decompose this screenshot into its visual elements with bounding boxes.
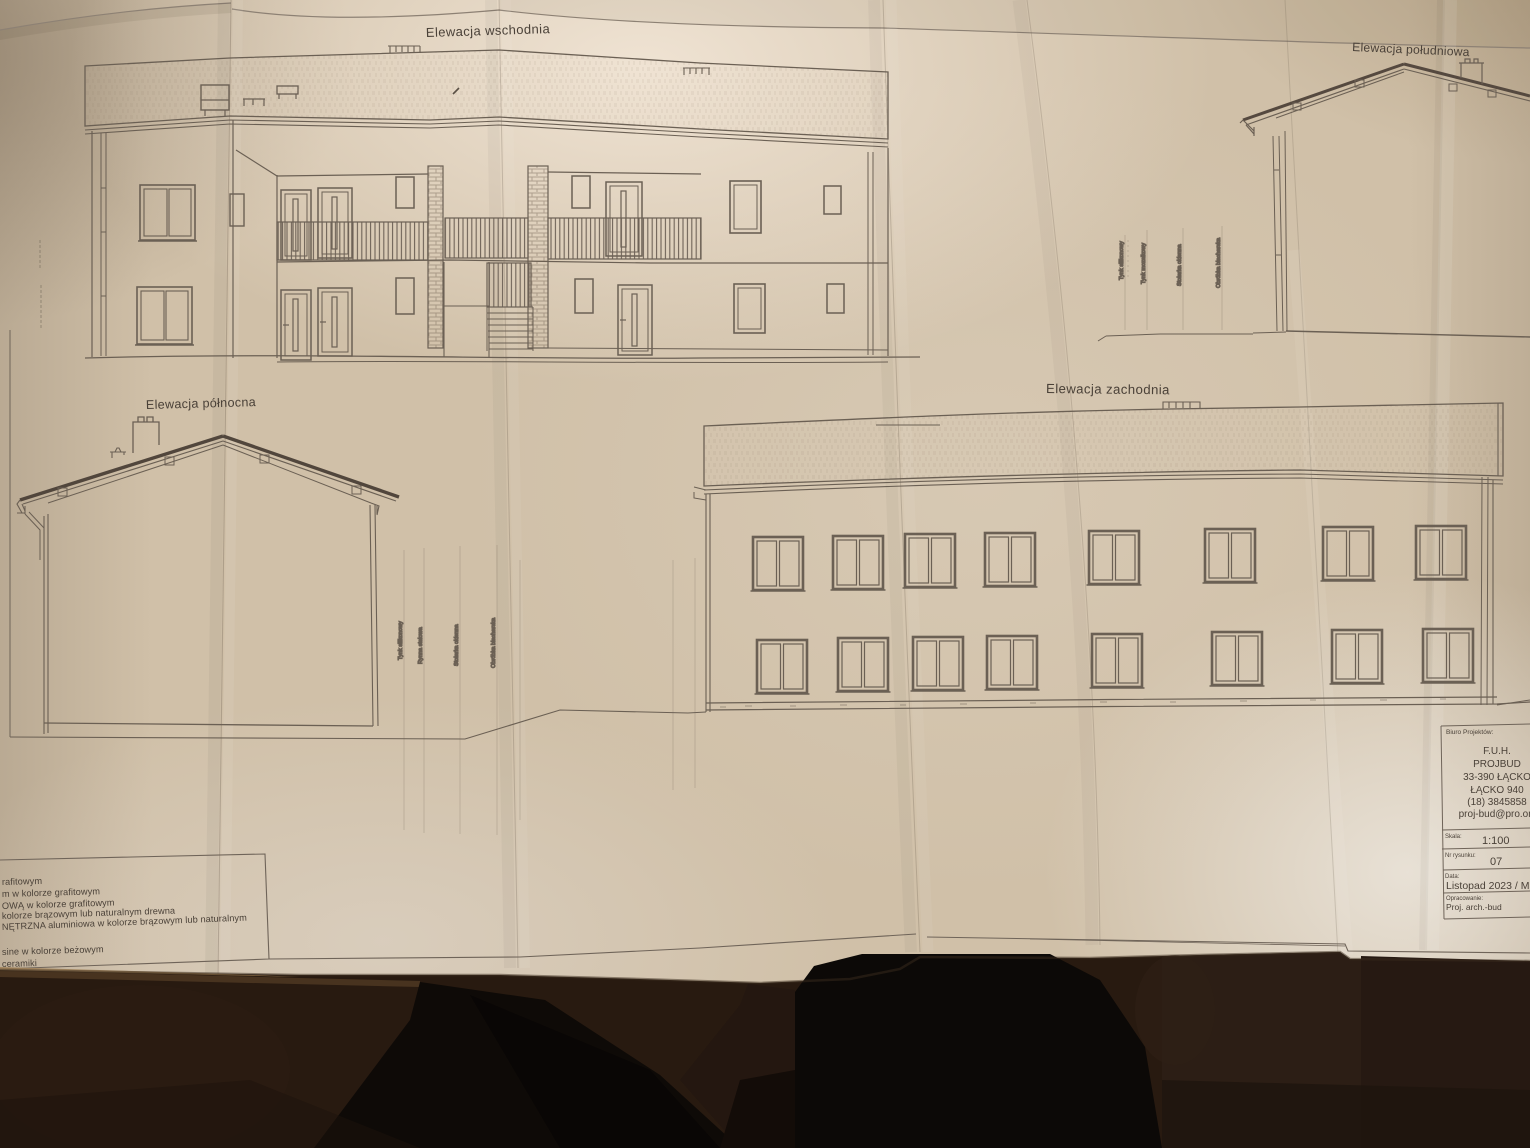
svg-text:Proj. arch.-bud: Proj. arch.-bud <box>1446 902 1502 912</box>
svg-text:Rynna stalowa: Rynna stalowa <box>418 626 424 664</box>
svg-text:33-390 ŁĄCKO: 33-390 ŁĄCKO <box>1463 772 1530 783</box>
svg-text:Skala:: Skala: <box>1445 834 1462 840</box>
svg-text:Stolarka okienna: Stolarka okienna <box>454 623 460 666</box>
svg-text:ŁĄCKO 940: ŁĄCKO 940 <box>1470 785 1524 796</box>
svg-text:proj-bud@pro.one: proj-bud@pro.one <box>1459 809 1530 820</box>
svg-text:Obróbka blacharska: Obróbka blacharska <box>1216 237 1222 288</box>
svg-text:Biuro Projektów:: Biuro Projektów: <box>1446 729 1494 736</box>
svg-text:(18) 3845858: (18) 3845858 <box>1467 797 1527 808</box>
svg-text:Nr rysunku:: Nr rysunku: <box>1445 853 1476 859</box>
svg-text:Stolarka okienna: Stolarka okienna <box>1177 243 1183 286</box>
svg-text:07: 07 <box>1490 856 1502 868</box>
svg-text:m w kolorze grafitowym: m w kolorze grafitowym <box>2 886 101 899</box>
svg-text:Elewacja północna: Elewacja północna <box>146 395 256 412</box>
svg-text:PROJBUD: PROJBUD <box>1473 759 1521 770</box>
svg-text:Listopad 2023 / Maj 2: Listopad 2023 / Maj 2 <box>1446 880 1530 892</box>
svg-text:Elewacja zachodnia: Elewacja zachodnia <box>1046 381 1170 397</box>
svg-text:1:100: 1:100 <box>1482 835 1510 847</box>
svg-text:Obróbka blacharska: Obróbka blacharska <box>491 617 497 668</box>
svg-text:F.U.H.: F.U.H. <box>1483 746 1511 757</box>
svg-text:Elewacja wschodnia: Elewacja wschodnia <box>426 21 551 40</box>
svg-text:Tynk silikonowy: Tynk silikonowy <box>1119 241 1125 280</box>
svg-text:rafitowym: rafitowym <box>2 876 43 887</box>
svg-text:Tynk silikonowy: Tynk silikonowy <box>398 621 404 660</box>
svg-text:sine w kolorze beżowym: sine w kolorze beżowym <box>2 944 104 957</box>
svg-text:Tynk mozaikowy: Tynk mozaikowy <box>1141 243 1147 284</box>
